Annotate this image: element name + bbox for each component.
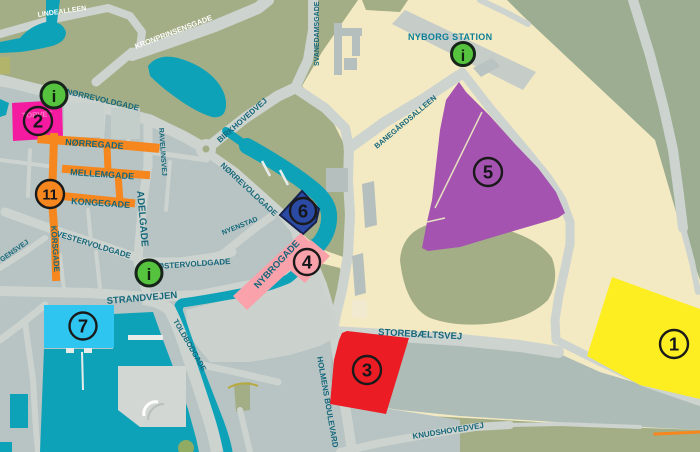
svg-text:6: 6 — [298, 201, 308, 222]
svg-text:1: 1 — [669, 334, 679, 355]
svg-text:i: i — [147, 265, 152, 284]
svg-text:5: 5 — [483, 162, 493, 183]
svg-text:SVANEDAMSGADE: SVANEDAMSGADE — [314, 1, 321, 66]
svg-text:7: 7 — [78, 316, 88, 337]
svg-text:i: i — [461, 48, 465, 65]
svg-text:NYBORG STATION: NYBORG STATION — [408, 32, 492, 42]
svg-text:3: 3 — [362, 360, 372, 381]
svg-text:2: 2 — [33, 111, 43, 132]
svg-text:i: i — [52, 87, 57, 106]
svg-text:4: 4 — [302, 252, 313, 273]
svg-text:11: 11 — [42, 188, 57, 204]
